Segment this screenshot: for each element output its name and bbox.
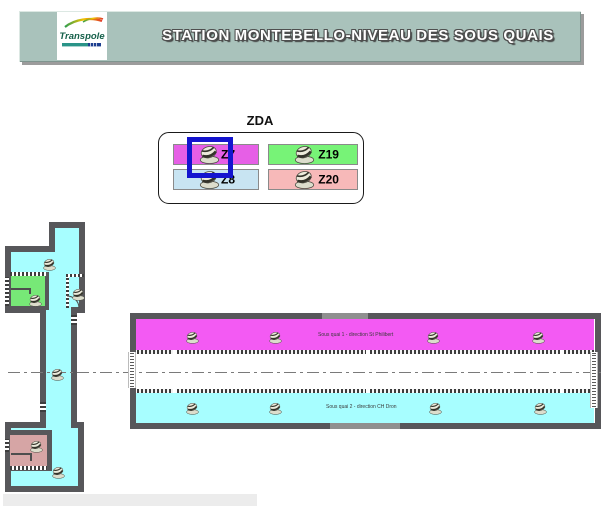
tactile-strip [177,350,366,354]
smoke-detector-icon[interactable] [51,466,66,479]
smoke-detector-icon[interactable] [50,368,65,381]
smoke-detector-icon[interactable] [29,440,44,453]
smoke-detector-icon[interactable] [185,402,200,415]
stair-landing [330,423,400,429]
door-hatch [10,466,47,470]
floor-plan: Sous quai 1 - direction St Philibert Sou… [0,0,604,507]
tactile-strip [137,350,173,354]
door-hatch [71,315,77,325]
smoke-detector-icon[interactable] [268,331,283,344]
micro-label-right [590,352,598,408]
smoke-detector-icon[interactable] [426,331,441,344]
bottom-shadow-bar [3,494,257,506]
smoke-detector-icon[interactable] [185,331,200,344]
smoke-detector-icon[interactable] [531,331,546,344]
partition-line [11,288,30,290]
micro-label-left [128,352,136,388]
partition-line [30,453,32,461]
smoke-detector-icon[interactable] [71,288,86,301]
partition-line [11,453,31,455]
station-plan-screen: Transpole STATION MONTEBELLO-NIVEAU DES … [0,0,604,507]
smoke-detector-icon[interactable] [268,402,283,415]
smoke-detector-icon[interactable] [428,402,443,415]
platform-quai-2-label: Sous quai 2 - direction CH Dron [326,404,397,410]
door-hatch [10,272,46,276]
platform-quai-1-label: Sous quai 1 - direction St Philibert [318,332,393,338]
door-hatch [5,277,9,306]
door-hatch [40,402,46,412]
smoke-detector-icon[interactable] [28,294,43,307]
tactile-strip [370,350,560,354]
smoke-detector-icon[interactable] [533,402,548,415]
smoke-detector-icon[interactable] [42,258,57,271]
track-centerline [8,372,601,373]
door-hatch [5,439,9,452]
